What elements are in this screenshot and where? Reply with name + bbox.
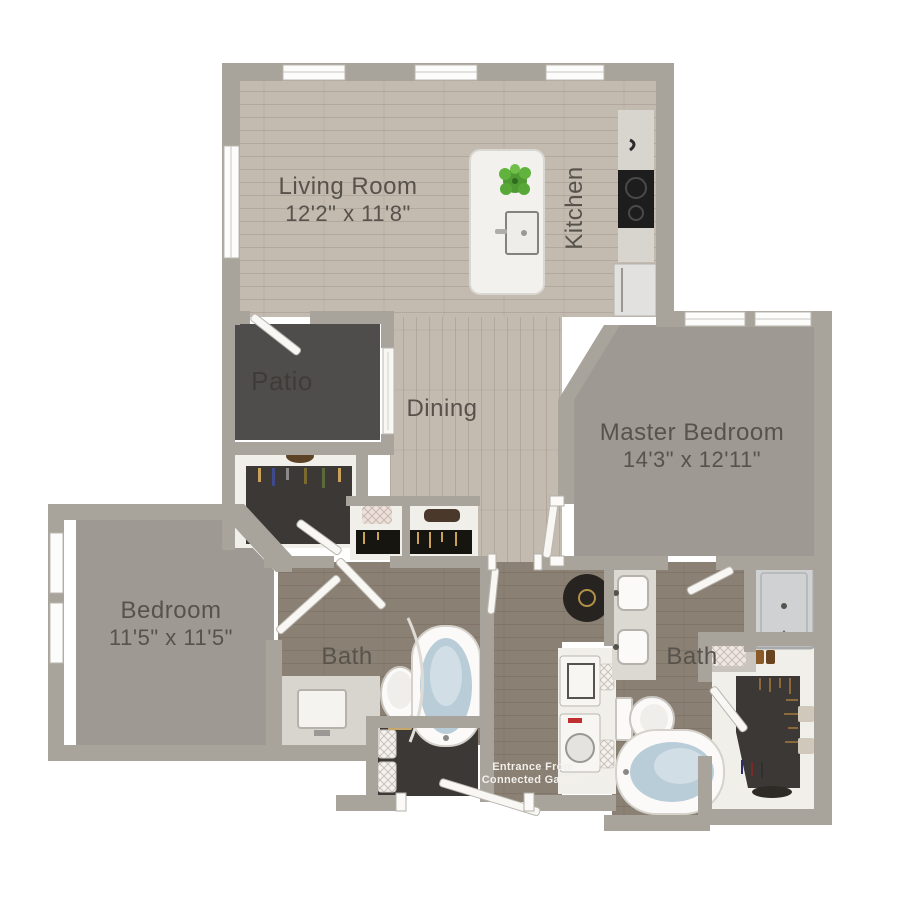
door-jamb [534, 554, 542, 570]
kitchen-island [470, 150, 544, 294]
floor-plan: Living Room 12'2" x 11'8" Kitchen Patio … [0, 0, 900, 900]
hall-cubbies [350, 500, 478, 560]
dining-label: Dining [406, 395, 477, 422]
door-jamb [550, 496, 564, 506]
refrigerator [614, 264, 656, 316]
living-room-label: Living Room [279, 173, 418, 200]
door-jamb [524, 793, 534, 811]
storage-box [424, 509, 460, 522]
patio-label: Patio [251, 366, 313, 396]
door-jamb [488, 554, 496, 570]
plant [499, 164, 531, 195]
bath2-label: Bath [666, 643, 717, 670]
bedroom-label: Bedroom [121, 597, 222, 624]
master-bedroom-label: Master Bedroom [600, 419, 784, 446]
window [50, 603, 63, 663]
closet-bench [798, 706, 814, 722]
shoes [755, 650, 764, 664]
bedroom-dims: 11'5" x 11'5" [109, 625, 233, 650]
window [50, 533, 63, 593]
bath2-sink-2 [618, 630, 648, 664]
entrance-label-line2: Connected Garage [482, 774, 585, 786]
floor-plan-page: Living Room 12'2" x 11'8" Kitchen Patio … [0, 0, 900, 900]
kitchen-label: Kitchen [561, 166, 588, 250]
entrance-label-line1: Entrance From [492, 761, 574, 773]
bath1-sink [298, 690, 346, 728]
island-faucet [495, 229, 507, 234]
living-room-dims: 12'2" x 11'8" [285, 201, 411, 226]
kitchen-fixtures [614, 110, 656, 316]
hall-table [563, 574, 611, 622]
bath2-sink-1 [618, 576, 648, 610]
bag [752, 786, 792, 798]
door-jamb [396, 793, 406, 811]
door-jamb [550, 556, 564, 566]
master-bedroom-dims: 14'3" x 12'11" [623, 447, 761, 472]
bath1-label: Bath [321, 643, 372, 670]
